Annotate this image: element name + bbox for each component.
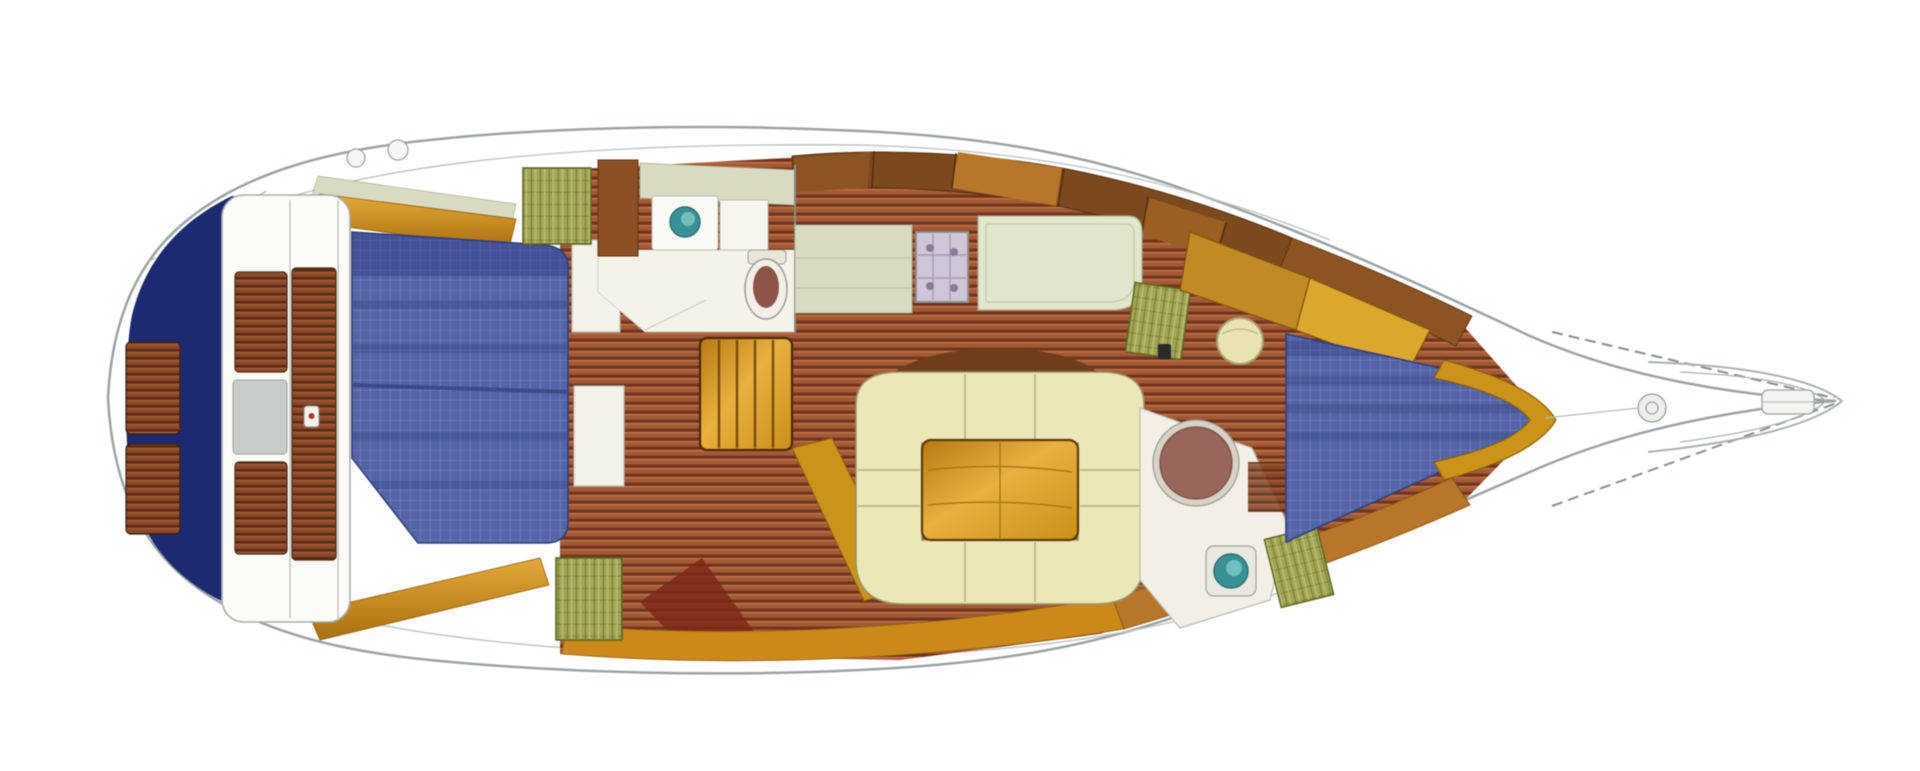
stove-burner-2 [950,248,958,256]
toilet-seat [753,266,779,308]
deck-hatch-green-bottom [556,558,622,640]
aft-head-shelf [720,200,768,250]
galley-counter [795,225,912,313]
cockpit-bench-port [235,272,287,372]
companionway-steps [700,338,792,450]
stove [916,232,968,302]
windlass [1638,394,1666,422]
cockpit-bench-starboard [235,462,287,554]
forward-sink-swirl [1226,560,1242,576]
galley [795,225,968,313]
stove-burner-4 [950,284,958,292]
aft-head [598,160,795,332]
winch-port [347,149,365,167]
stove-burner-3 [926,282,934,290]
stove-burner-1 [926,244,934,252]
shower-grate [1160,427,1232,499]
nav-pouf [1217,318,1263,364]
helm-emblem-dot [309,413,315,419]
aft-cabinet-bottom [574,386,624,486]
mast-post [1158,344,1171,359]
boat-floor-plan-page [0,0,1920,771]
chart-table [978,216,1142,310]
aft-head-cabinet [598,160,638,256]
aft-sink-swirl [681,212,695,226]
steps-body [700,338,792,450]
cockpit-hatch [233,380,287,454]
deck-hatch-green-top [523,168,591,244]
swim-step-lower [126,444,180,534]
swim-step-upper [126,342,180,434]
winch-starboard [388,140,408,160]
boat-floor-plan [0,0,1920,771]
wood-band-top-seg-aft [794,152,870,192]
